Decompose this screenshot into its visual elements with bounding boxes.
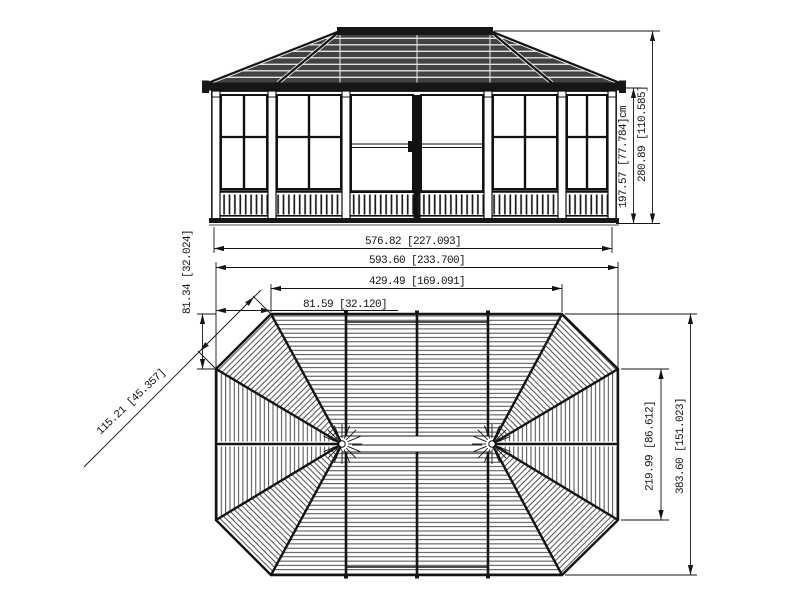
elevation-view: 576.82 [227.093] 197.57 [77.784]cm 280.8… [202, 27, 660, 253]
dim-label-plan-side-edge: 219.99 [86.612] [645, 401, 657, 491]
dim-label-plan-corner-rise: 81.34 [32.024] [182, 230, 194, 314]
dim-label-plan-total-width: 593.60 [233.700] [369, 255, 465, 267]
window-bay-2 [277, 95, 341, 189]
technical-drawing-canvas: 576.82 [227.093] 197.57 [77.784]cm 280.8… [0, 0, 800, 600]
plan-hub-left [322, 424, 362, 464]
elevation-roof [202, 27, 626, 93]
dim-plan-corner-rise: 81.34 [32.024] [182, 230, 216, 369]
dim-plan-side-edge: 219.99 [86.612] [621, 369, 669, 520]
dim-label-plan-corner-run: 81.59 [32.120] [303, 299, 387, 311]
window-bay-5 [493, 95, 557, 189]
drawing-page: 576.82 [227.093] 197.57 [77.784]cm 280.8… [0, 0, 800, 600]
plan-hub-right [472, 424, 512, 464]
dim-plan-corner-run: 81.59 [32.120] [216, 299, 398, 311]
dim-label-plan-corner-edge: 115.21 [45.357] [95, 367, 169, 438]
roof-plan-view: 593.60 [233.700] 429.49 [169.091] 81.59 … [84, 230, 697, 579]
door-handle [408, 141, 421, 152]
window-bay-1 [221, 95, 267, 189]
base-beam [209, 218, 619, 223]
dim-label-plan-front-edge: 429.49 [169.091] [369, 276, 465, 288]
window-bay-6 [567, 95, 607, 189]
eave-end-cap-left [202, 81, 209, 94]
dim-label-elevation-width: 576.82 [227.093] [365, 236, 461, 248]
dim-label-plan-total-depth: 383.60 [151.023] [675, 398, 687, 494]
dim-elevation-width: 576.82 [227.093] [214, 227, 612, 253]
plan-ridge-band [342, 436, 492, 452]
elevation-walls [209, 91, 619, 225]
roof-ridge-beam [337, 27, 493, 35]
dim-label-wall-height: 197.57 [77.784]cm [618, 105, 630, 208]
roof-eave-beam [204, 83, 624, 91]
dim-label-total-height: 280.89 [110.585] [637, 86, 649, 182]
eave-end-cap-right [619, 81, 626, 94]
